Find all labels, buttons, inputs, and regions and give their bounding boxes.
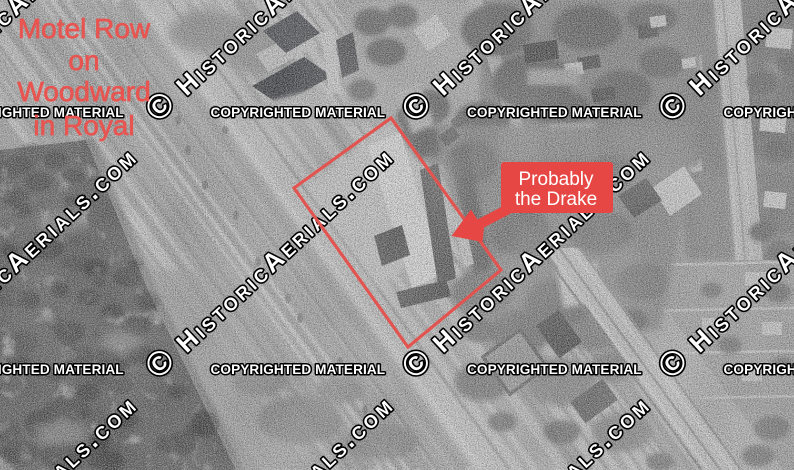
svg-text:COPYRIGHTED MATERIAL: COPYRIGHTED MATERIAL [724,362,794,377]
svg-text:COPYRIGHTED MATERIAL: COPYRIGHTED MATERIAL [211,105,386,120]
svg-text:COPYRIGHTED MATERIAL: COPYRIGHTED MATERIAL [211,362,386,377]
svg-text:COPYRIGHTED MATERIAL: COPYRIGHTED MATERIAL [467,105,642,120]
svg-text:Woodward: Woodward [17,76,150,107]
svg-text:COPYRIGHTED MATERIAL: COPYRIGHTED MATERIAL [467,362,642,377]
svg-text:the Drake: the Drake [515,189,597,210]
svg-text:COPYRIGHTED MATERIAL: COPYRIGHTED MATERIAL [0,362,124,377]
svg-text:in Royal: in Royal [33,110,134,141]
svg-text:Probably: Probably [519,169,594,190]
svg-text:Motel Row: Motel Row [18,13,151,44]
svg-text:on: on [68,45,99,76]
svg-text:COPYRIGHTED MATERIAL: COPYRIGHTED MATERIAL [724,105,794,120]
